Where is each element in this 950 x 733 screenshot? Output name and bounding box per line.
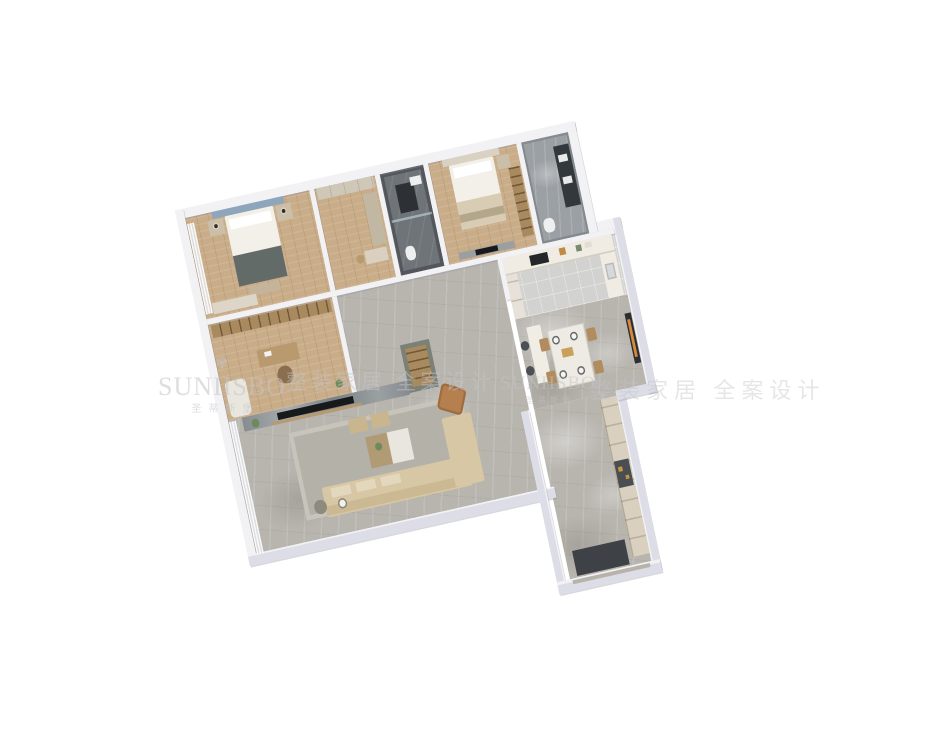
office-chair bbox=[277, 366, 293, 384]
countertop-item bbox=[575, 244, 582, 251]
niche-item bbox=[625, 475, 629, 480]
apartment-plan bbox=[185, 125, 691, 655]
niche-item bbox=[618, 466, 623, 472]
countertop-item bbox=[559, 247, 567, 255]
floorplan-render: ✾ SUNIISBO 圣蒂斯堡 整装家居 全案设计 SUNHSBO 圣蒂斯堡 整… bbox=[0, 0, 950, 733]
